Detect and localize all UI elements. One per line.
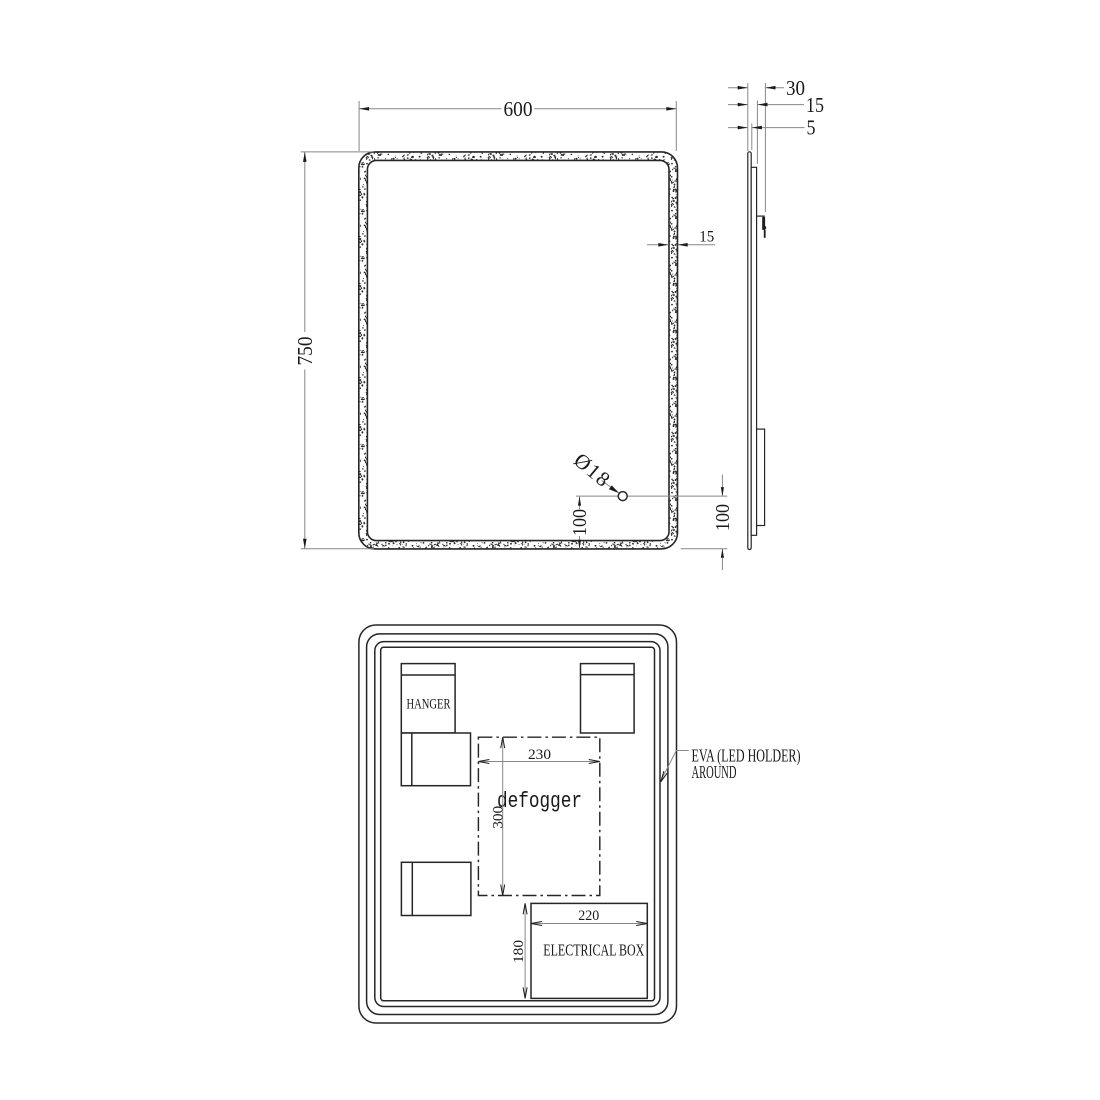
svg-text:ELECTRICAL BOX: ELECTRICAL BOX	[543, 941, 644, 960]
svg-text:30: 30	[786, 76, 805, 100]
svg-text:100: 100	[712, 504, 734, 531]
svg-text:220: 220	[578, 908, 599, 924]
svg-text:100: 100	[569, 509, 591, 536]
svg-text:5: 5	[807, 116, 816, 140]
svg-text:300: 300	[491, 806, 507, 829]
svg-text:600: 600	[504, 97, 533, 121]
svg-text:230: 230	[528, 747, 551, 763]
svg-text:AROUND: AROUND	[692, 762, 737, 782]
svg-text:180: 180	[511, 940, 527, 963]
svg-text:15: 15	[699, 229, 714, 246]
svg-text:HANGER: HANGER	[407, 697, 451, 713]
svg-text:defogger: defogger	[497, 789, 582, 814]
svg-text:750: 750	[293, 337, 317, 366]
svg-text:15: 15	[806, 93, 824, 117]
